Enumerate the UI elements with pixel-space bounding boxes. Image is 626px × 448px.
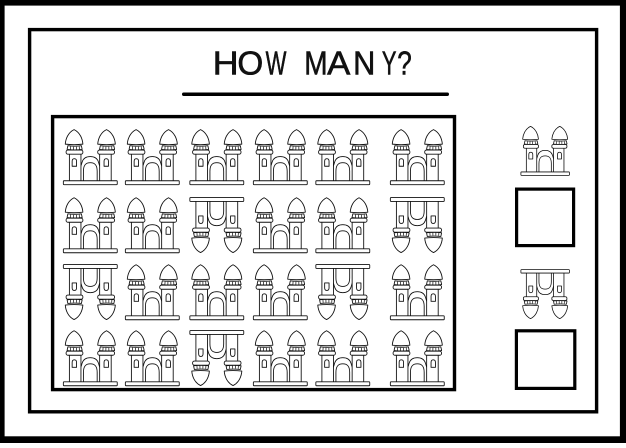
- svg-text:M: M: [304, 44, 327, 82]
- svg-text:W: W: [266, 44, 287, 82]
- svg-text:A: A: [327, 44, 351, 82]
- svg-text:N: N: [353, 44, 375, 82]
- svg-text:?: ?: [397, 44, 412, 82]
- svg-text:H: H: [213, 44, 239, 82]
- svg-text:Y: Y: [382, 44, 397, 82]
- svg-text:O: O: [237, 44, 263, 82]
